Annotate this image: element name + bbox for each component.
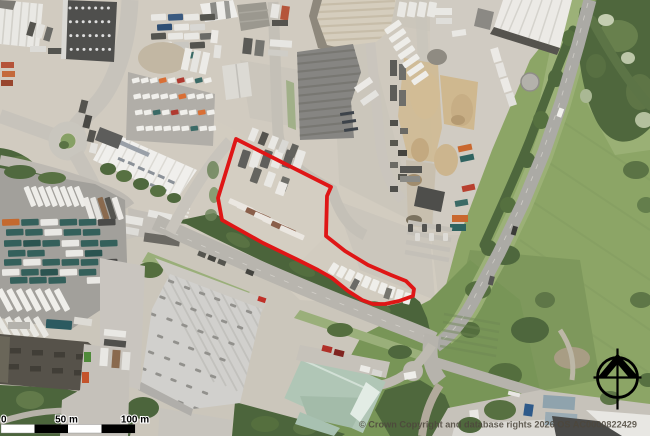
svg-text:© Crown Copyright and database: © Crown Copyright and database rights 20…: [359, 420, 637, 431]
svg-text:50 m: 50 m: [55, 415, 78, 426]
svg-text:0: 0: [1, 415, 7, 426]
svg-text:100 m: 100 m: [121, 415, 149, 426]
